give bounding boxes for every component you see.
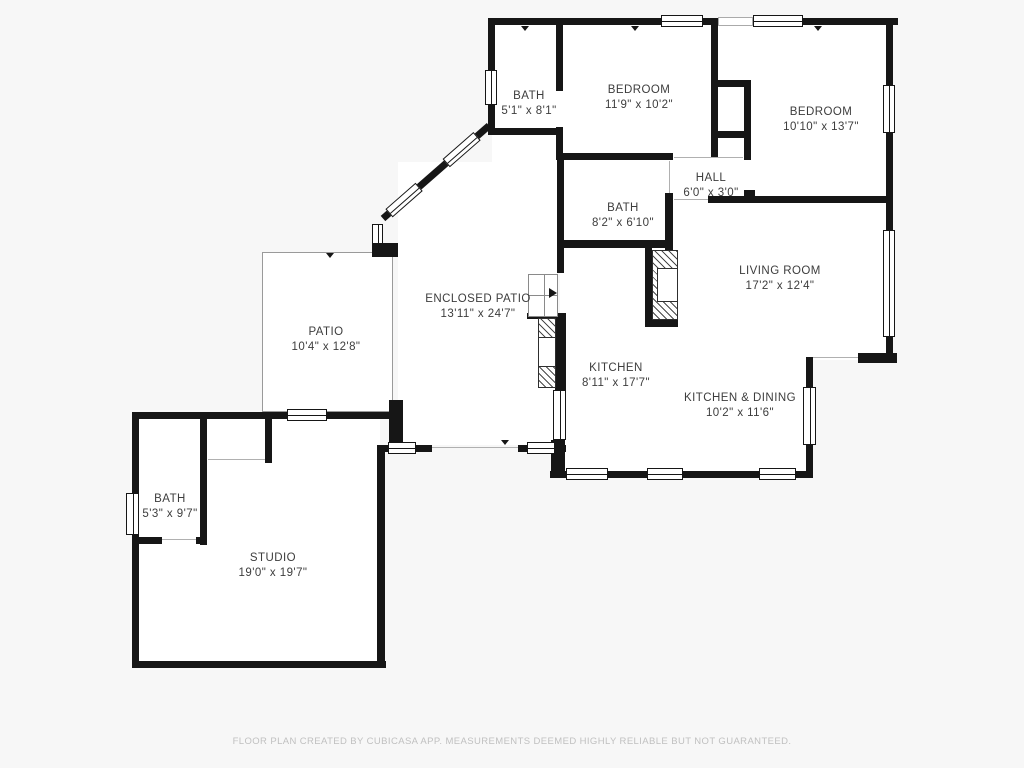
room-fill (135, 415, 380, 665)
room-label-hall: HALL 6'0" x 3'0" (683, 171, 738, 201)
room-label-studio: STUDIO 19'0" x 19'7" (239, 551, 308, 581)
hatched-fixture-insert (538, 337, 556, 367)
room-dimensions: 11'9" x 10'2" (605, 98, 673, 113)
window (553, 390, 566, 440)
closet-wall (744, 80, 751, 160)
bath-left-wall (557, 153, 564, 273)
closet-wall (711, 25, 718, 158)
window (753, 15, 803, 27)
room-dimensions: 10'10" x 13'7" (783, 120, 859, 135)
fireplace-insert (657, 268, 678, 302)
door-tick (814, 26, 822, 35)
room-name: BEDROOM (783, 105, 859, 120)
closet-wall (711, 131, 751, 138)
room-dimensions: 17'2" x 12'4" (739, 279, 821, 294)
kitchen-top-wall (557, 240, 673, 248)
bedroom-bottom-wall (556, 153, 673, 160)
studio-bottom-wall (132, 661, 386, 668)
window (388, 442, 416, 454)
room-label-bath-2: BATH 8'2" x 6'10" (592, 201, 654, 231)
room-label-bath-1: BATH 5'1" x 8'1" (501, 89, 556, 119)
room-label-kitchen-dining: KITCHEN & DINING 10'2" x 11'6" (684, 391, 796, 421)
door-tick (631, 26, 639, 35)
fireplace-cap (645, 320, 678, 327)
footer-disclaimer: FLOOR PLAN CREATED BY CUBICASA APP. MEAS… (0, 736, 1024, 747)
room-name: KITCHEN (582, 361, 650, 376)
window (883, 230, 895, 337)
wall-nub (744, 190, 755, 197)
room-name: STUDIO (239, 551, 308, 566)
cabinet-divider (544, 275, 545, 316)
door-opening (813, 357, 858, 358)
room-label-bath-3: BATH 5'3" x 9'7" (142, 492, 197, 522)
room-label-kitchen: KITCHEN 8'11" x 17'7" (582, 361, 650, 391)
room-name: LIVING ROOM (739, 264, 821, 279)
room-name: ENCLOSED PATIO (425, 292, 531, 307)
bath-bottom-wall (132, 537, 162, 544)
room-name: PATIO (292, 325, 361, 340)
fireplace-wall (645, 248, 652, 327)
door-opening (669, 161, 670, 193)
room-dimensions: 8'2" x 6'10" (592, 216, 654, 231)
room-label-bedroom-2: BEDROOM 10'10" x 13'7" (783, 105, 859, 135)
window (485, 70, 497, 105)
bath-bottom-wall (196, 537, 207, 544)
window (759, 468, 796, 480)
door-opening (162, 539, 196, 540)
door-tick (501, 440, 509, 449)
room-name: BATH (501, 89, 556, 104)
floor-plan: BATH 5'1" x 8'1" BEDROOM 11'9" x 10'2" B… (0, 0, 1024, 768)
closet-wall (711, 80, 751, 87)
room-name: KITCHEN & DINING (684, 391, 796, 406)
window (803, 387, 816, 445)
bath-right-wall (200, 412, 207, 545)
window (661, 15, 703, 27)
step-wall (858, 353, 897, 363)
window (372, 224, 383, 244)
room-dimensions: 19'0" x 19'7" (239, 566, 308, 581)
studio-right-wall (377, 445, 385, 668)
bedroom-left-wall (556, 25, 563, 91)
room-name: BEDROOM (605, 83, 673, 98)
wall-gap (718, 17, 753, 26)
direction-arrow (549, 288, 562, 298)
door-opening (674, 157, 743, 158)
kitchen-left-wall (555, 315, 566, 392)
room-name: BATH (592, 201, 654, 216)
room-label-bedroom-1: BEDROOM 11'9" x 10'2" (605, 83, 673, 113)
room-dimensions: 5'3" x 9'7" (142, 507, 197, 522)
room-dimensions: 10'2" x 11'6" (684, 406, 796, 421)
room-label-living-room: LIVING ROOM 17'2" x 12'4" (739, 264, 821, 294)
room-dimensions: 8'11" x 17'7" (582, 376, 650, 391)
room-dimensions: 13'11" x 24'7" (425, 307, 531, 322)
bath-bottom-wall (488, 128, 563, 135)
room-dimensions: 6'0" x 3'0" (683, 186, 738, 201)
window (126, 493, 139, 535)
window (566, 468, 608, 480)
window (647, 468, 683, 480)
door-tick (326, 253, 334, 262)
closet-wall (265, 412, 272, 463)
room-name: BATH (142, 492, 197, 507)
room-dimensions: 10'4" x 12'8" (292, 340, 361, 355)
door-tick (521, 26, 529, 35)
room-dimensions: 5'1" x 8'1" (501, 104, 556, 119)
room-label-patio: PATIO 10'4" x 12'8" (292, 325, 361, 355)
wall-nub (372, 243, 398, 257)
room-label-enclosed-patio: ENCLOSED PATIO 13'11" x 24'7" (425, 292, 531, 322)
door-opening (208, 459, 265, 460)
window (287, 409, 327, 421)
room-name: HALL (683, 171, 738, 186)
window (883, 85, 895, 133)
window (527, 442, 555, 454)
